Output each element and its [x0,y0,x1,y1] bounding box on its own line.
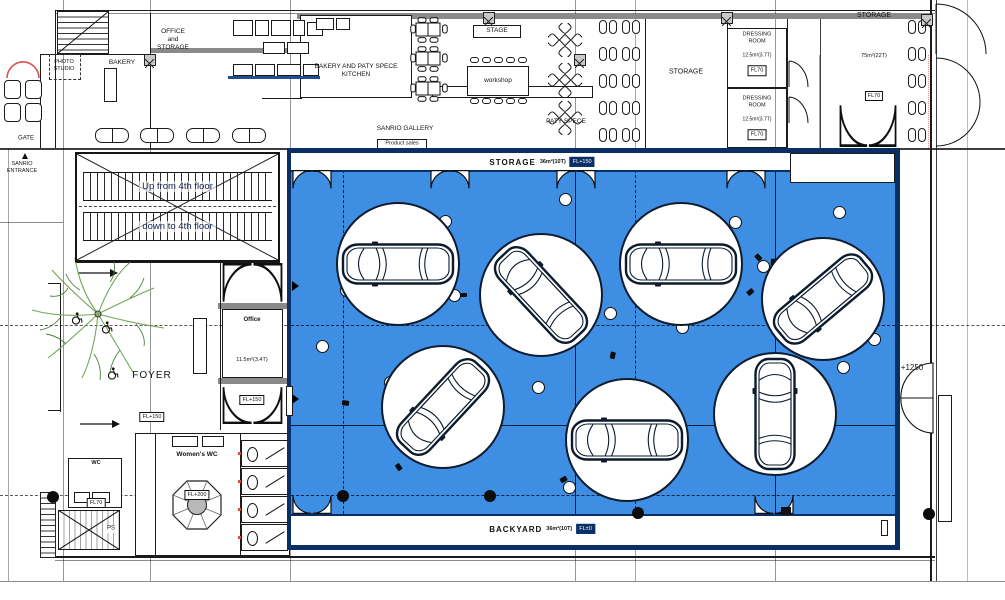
workshop-chair [518,98,527,104]
wall [48,410,61,411]
dressing-room-1-label: DRESSING ROOM 12.5m²(3.7T) FL70 [743,24,772,76]
right-double-door-arc [934,56,984,153]
floor-plan: Up from 4th floor down to 4th floor [0,0,1005,600]
womens-wc-level-badge: FL+200 [185,490,210,500]
entrance-arrow-icon [22,153,28,159]
paty-spece-label: PATY SPECE [546,118,586,126]
wall [645,19,646,148]
corner-door-arc [934,2,988,61]
kitchen-equipment [233,20,253,36]
car-turntable [479,233,603,357]
toilet-stall [241,440,288,467]
steel-column-icon [574,54,586,66]
booth-seat [609,101,617,115]
office-small-area: 11.5m²(3.4T) [236,357,267,363]
womens-wc-name: Women's WC [176,451,217,458]
corridor-door-arc [788,60,809,93]
lobby-bench [140,128,174,143]
double-door [292,495,332,514]
grid-line-v [290,550,291,581]
bench-divider [249,129,250,142]
dining-table-cluster [410,76,448,107]
stall-door-line [265,475,284,488]
car-turntable [619,202,743,326]
backyard-door-leaf [881,520,888,536]
stall-door-line [265,447,284,460]
booth-seat [609,74,617,88]
office-storage-label: OFFICE and STORAGE [157,28,189,52]
showroom-frame-left [287,148,291,550]
wall [55,10,935,11]
sanrio-gallery-label: SANRIO GALLERY [377,125,434,133]
bench-divider [157,129,158,142]
toilet-bowl [247,531,258,546]
booth-seat [599,74,607,88]
escalator-up-band: Up from 4th floor [83,172,272,201]
stall-door-line [265,503,284,516]
dressing-room-level-badge: FL70 [748,130,767,140]
wall [55,556,935,558]
bakery-counter [104,68,117,102]
foyer-shaft [193,318,207,374]
pink-dotted-line [928,55,929,148]
escalator-block: Up from 4th floor down to 4th floor [75,152,280,262]
booth-seat [908,47,916,61]
x-table-cluster [548,63,582,102]
spotlight-icon [609,351,615,359]
showroom-zone: STORAGE 36m²(10T) FL+150 BACKYARD 36m²(1… [287,148,900,550]
column-dot [632,507,644,519]
car-turntable [761,237,885,361]
column-dot [337,490,349,502]
accessible-wc-label: WC FL70 [87,430,106,510]
escalator-down-band: down to 4th floor [83,212,272,241]
stage-label: STAGE [486,27,508,35]
downlight-dot [563,481,576,494]
bakery-label: BAKERY [109,59,135,67]
foyer-name: FOYER [132,370,171,381]
showroom-east-door [900,362,934,439]
toilet-bowl [247,447,258,462]
toilet-stall [241,496,288,523]
steel-column-icon [721,12,733,24]
toilet-bowl [247,503,258,518]
womens-wc-label: Women's WC FL+200 [176,422,217,502]
booth-seat [908,101,916,115]
booth-seat [609,20,617,34]
storage-double-door [839,104,897,147]
grid-line-h [900,325,1005,326]
car-turntable [713,352,837,476]
right-pillar [938,395,952,522]
stall-marker [238,452,241,455]
door-marker-icon [292,394,299,404]
storage-right-level-badge: FL70 [865,91,884,101]
dressing-room-area: 12.5m²(3.7T) [743,52,772,58]
grid-bullet [923,508,935,520]
backyard-strip-name: BACKYARD [489,525,542,534]
escalator-up-label: Up from 4th floor [139,181,216,192]
product-sales-label: Product sales [385,141,418,148]
showroom-frame-bottom [287,545,900,550]
steel-column-icon [144,54,156,66]
foyer-level-badge: FL+150 [140,412,165,422]
car-turntable [565,378,689,502]
workshop-chair [506,57,515,63]
kitchen-equipment [336,18,350,30]
booth-seat [908,20,916,34]
booth-seat [622,47,630,61]
booth-seat [609,47,617,61]
office-small-name: Office [243,317,260,323]
workshop-chair [482,57,491,63]
booth-seat [918,74,926,88]
wheelchair-icon [102,321,113,339]
storage-right-name: STORAGE [857,12,891,19]
backyard-strip-label: BACKYARD 36m²(10T) FL±0 [489,524,595,534]
booth-seat [632,47,640,61]
kitchen-equipment [263,42,285,54]
workshop-chair [482,98,491,104]
booth-seat [599,101,607,115]
dressing-room-level-badge: FL70 [748,66,767,76]
kitchen-counter-edge [228,76,320,79]
downlight-dot [837,361,850,374]
toilet-stall [241,524,288,551]
showroom-frame-right [895,148,900,550]
accessible-wc-name: WC [91,460,100,466]
kitchen-equipment [271,20,291,36]
wall [155,433,156,556]
downlight-dot [559,193,572,206]
ps-label: PS [106,525,116,533]
stall-marker [238,508,241,511]
booth-seat [599,128,607,142]
workshop-label: workshop [484,77,512,85]
bench-divider [112,129,113,142]
booth-seat [908,128,916,142]
backyard-strip-level-badge: FL±0 [576,524,595,534]
pink-line [819,55,820,148]
sanrio-entrance-label: SANRIO ENTRANCE [7,161,37,175]
kitchen-equipment [255,64,275,76]
booth-seat [632,101,640,115]
kitchen-equipment [293,20,305,36]
workshop-chair [494,98,503,104]
booth-seat [908,74,916,88]
toilet-bowl [247,475,258,490]
double-door [430,170,470,189]
kitchen-equipment [233,64,253,76]
workshop-chair [494,57,503,63]
foyer-label: FOYER FL+150 [132,344,171,424]
booth-seat [599,47,607,61]
office-small-level-badge: FL+150 [240,395,265,405]
booth-seat [632,20,640,34]
storage-strip-area: 36m²(10T) [540,159,566,165]
lobby-bench [95,128,129,143]
storage-strip-name: STORAGE [489,158,535,167]
double-door [726,170,766,189]
dressing-room-2-label: DRESSING ROOM 12.5m²(3.7T) FL70 [743,88,772,140]
dressing-room-name: DRESSING ROOM [743,95,772,108]
workshop-chair [470,57,479,63]
wall [0,222,63,223]
wall [55,560,935,561]
stairs-upper [57,11,109,54]
downlight-dot [833,206,846,219]
car-turntable [381,345,505,469]
spotlight-icon [341,400,349,405]
grid-line-h [291,495,895,496]
wall [262,98,302,99]
lounge-chair [4,80,21,99]
steel-column-icon [921,14,933,26]
level-marker-label: +1250 [901,363,923,373]
dining-table-cluster [410,46,448,77]
dining-table-cluster [410,17,448,48]
workshop-chair [518,57,527,63]
storage-right-area: 75m²(22T) [861,53,887,59]
wheelchair-icon [108,367,119,385]
booth-seat [622,20,630,34]
double-door [292,170,332,189]
backyard-strip-area: 36m²(10T) [546,526,572,532]
booth-seat [622,101,630,115]
booth-seat [918,101,926,115]
service-hatch [781,507,791,515]
gate-label: GATE [18,135,34,143]
lounge-chair [4,103,21,122]
accessible-wc-level-badge: FL70 [87,498,106,508]
kitchen-equipment [287,42,309,54]
wall [820,19,821,148]
steel-column-icon [483,12,495,24]
kitchen-label: BAKERY AND PATY SPECE KITCHEN [315,63,398,79]
booth-seat [622,74,630,88]
booth-seat [622,128,630,142]
kitchen-equipment [277,64,301,76]
wall [930,0,932,581]
site-boundary [0,581,1005,582]
column-dot [484,490,496,502]
office-small-label: Office 11.5m²(3.4T) FL+150 [236,287,267,407]
photo-studio-label: PHOTO STUDIO [54,59,75,73]
workshop-chair [506,98,515,104]
grid-line-v [8,148,9,581]
lobby-bench [186,128,220,143]
strip-right-room [790,153,895,183]
booth-seat [918,128,926,142]
lounge-chair [25,80,42,99]
toilet-stall [241,468,288,495]
kitchen-equipment [255,20,269,36]
storage-strip-label: STORAGE 36m²(10T) FL+150 [489,157,594,167]
grid-bullet [47,491,59,503]
stall-door-line [265,531,284,544]
lobby-bench [232,128,266,143]
wheelchair-icon [72,312,83,330]
booth-seat [609,128,617,142]
downlight-dot [604,307,617,320]
booth-seat [599,20,607,34]
downlight-dot [532,381,545,394]
booth-seat [632,74,640,88]
booth-seat [918,47,926,61]
door-marker-icon [292,281,299,291]
escalator-centerline [79,206,276,207]
storage-mid-label: STORAGE [669,69,703,78]
storage-right-label: STORAGE 75m²(22T) FL70 [857,0,891,103]
double-door [556,170,596,189]
dressing-room-area: 12.5m²(3.7T) [743,116,772,122]
storage-strip-level-badge: FL+150 [570,157,595,167]
dressing-room-name: DRESSING ROOM [743,31,772,44]
corridor-door-arc [788,96,809,129]
escalator-down-label: down to 4th floor [139,221,215,232]
grid-line-v [343,170,344,514]
stall-marker [238,480,241,483]
downlight-dot [316,340,329,353]
stall-marker [238,536,241,539]
booth-seat [632,128,640,142]
kitchen-equipment [316,18,334,30]
lounge-chair [25,103,42,122]
bench-divider [203,129,204,142]
car-turntable [336,202,460,326]
workshop-chair [470,98,479,104]
spotlight-icon [460,293,467,298]
